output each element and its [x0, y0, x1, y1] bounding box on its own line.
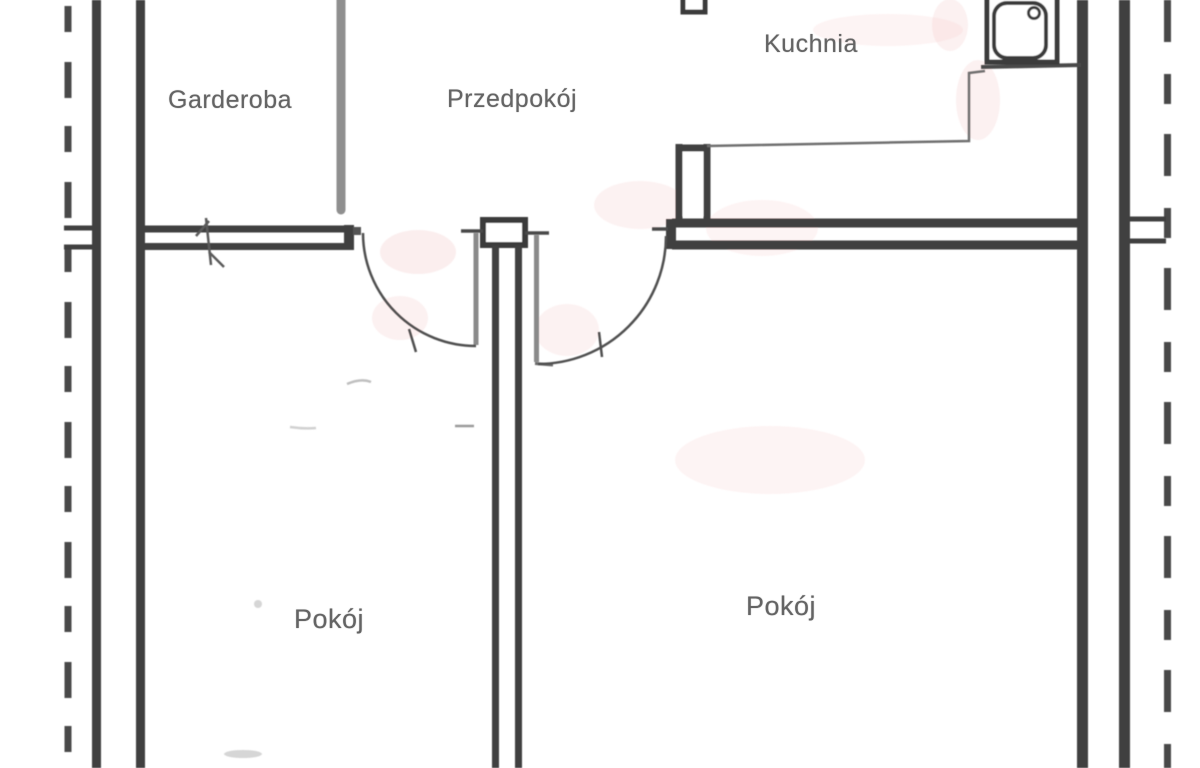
- room-label-przedpokoj: Przedpokój: [447, 85, 577, 114]
- vent-shaft: [683, 0, 705, 12]
- interior-wall-left-horizontal: [64, 225, 361, 250]
- wall-break-icon: [196, 218, 224, 267]
- wall-kitchen-stub: [676, 144, 711, 224]
- exterior-wall-left: [97, 0, 141, 768]
- room-label-garderoba: Garderoba: [168, 86, 292, 115]
- kitchen-sink-icon: [981, 0, 1081, 67]
- room-label-pokoj-left: Pokój: [294, 604, 364, 635]
- floor-plan: Garderoba Przedpokój Kuchnia Pokój Pokój: [0, 0, 1200, 768]
- exterior-wall-right: [1083, 0, 1125, 768]
- floor-plan-drawing: [0, 0, 1200, 768]
- kitchen-boundary-line: [707, 71, 985, 146]
- room-label-pokoj-right: Pokój: [746, 591, 816, 622]
- room-label-kuchnia: Kuchnia: [764, 30, 858, 59]
